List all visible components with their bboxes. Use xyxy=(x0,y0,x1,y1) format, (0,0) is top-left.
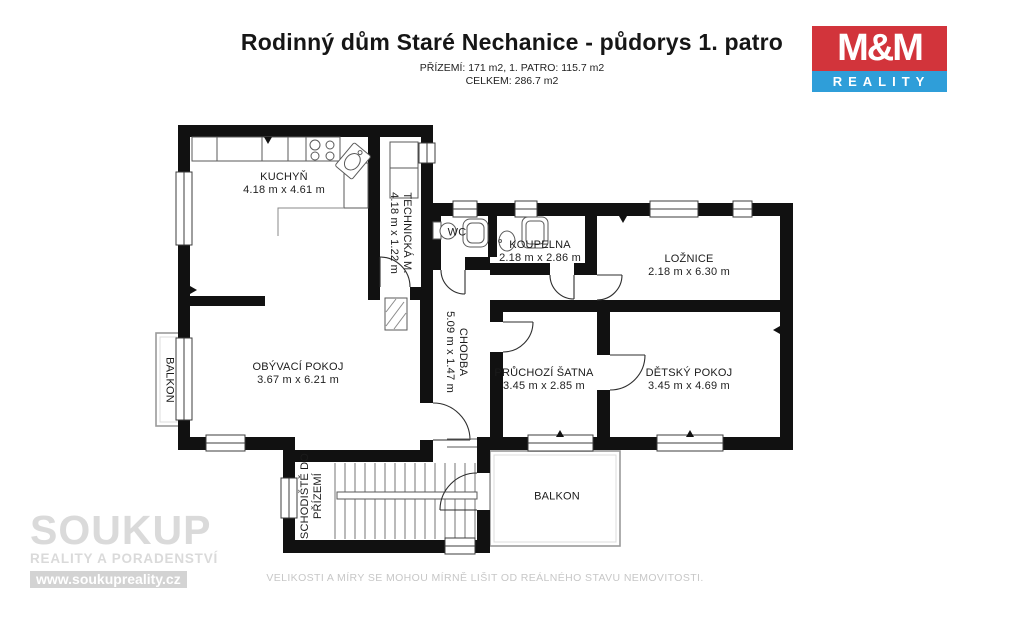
soukup-url: www.soukupreality.cz xyxy=(30,571,187,588)
room-label-kuchyn: KUCHYŇ4.18 m x 4.61 m xyxy=(243,171,325,197)
room-label-technicka: TECHNICKÁ M.4.18 m x 1.22 m xyxy=(387,192,413,274)
soukup-tagline: REALITY A PORADENSTVÍ xyxy=(30,551,218,566)
room-label-balkon-left: BALKON xyxy=(163,357,176,403)
stove-icon xyxy=(306,137,340,161)
soukup-brand: SOUKUP xyxy=(30,510,218,550)
room-label-schodiste: SCHODIŠTĚ DOPŘÍZEMÍ xyxy=(299,453,325,539)
room-label-wc: WC xyxy=(448,227,467,240)
room-label-loznice: LOŽNICE2.18 m x 6.30 m xyxy=(648,253,730,279)
shower-tub-icon xyxy=(463,219,488,247)
room-label-obyvaci-pokoj: OBÝVACÍ POKOJ3.67 m x 6.21 m xyxy=(252,361,343,387)
staircase-icon xyxy=(335,463,477,539)
disclaimer-text: VELIKOSTI A MÍRY SE MOHOU MÍRNĚ LIŠIT OD… xyxy=(252,572,718,584)
chimney-icon xyxy=(385,298,407,330)
room-label-balkon-bottom: BALKON xyxy=(534,491,580,504)
room-label-koupelna: KOUPELNA2.18 m x 2.86 m xyxy=(499,239,581,265)
room-label-chodba: CHODBA5.09 m x 1.47 m xyxy=(443,311,469,393)
room-label-pruchozi-satna: PRŮCHOZÍ ŠATNA3.45 m x 2.85 m xyxy=(494,367,593,393)
soukup-watermark: SOUKUP REALITY A PORADENSTVÍ www.soukupr… xyxy=(30,510,218,589)
room-label-detsky-pokoj: DĚTSKÝ POKOJ3.45 m x 4.69 m xyxy=(646,367,733,393)
boiler-icon xyxy=(390,142,418,198)
